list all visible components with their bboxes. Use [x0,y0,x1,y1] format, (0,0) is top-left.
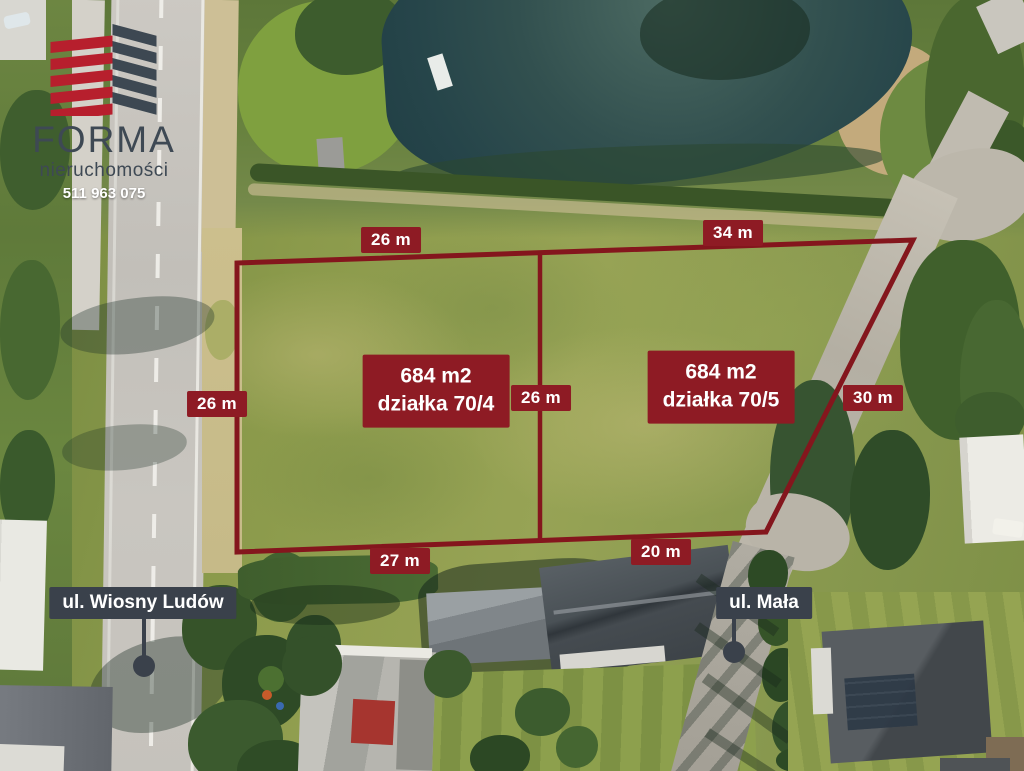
plot-outline [237,240,913,552]
dimension-label-right: 30 m [843,385,903,411]
brand-name: FORMA [28,121,180,158]
map-pin-dot-icon [723,641,745,663]
brand-phone: 511 963 075 [28,185,180,202]
plot-card-70-5: 684 m2 działka 70/5 [648,351,795,424]
dimension-label-bottom-left: 27 m [370,548,430,574]
plot-number: działka 70/4 [378,391,495,419]
plot-card-70-4: 684 m2 działka 70/4 [363,355,510,428]
map-pin-dot-icon [133,655,155,677]
plot-area: 684 m2 [378,363,495,391]
dimension-label-top-left: 26 m [361,227,421,253]
dimension-label-top-right: 34 m [703,220,763,246]
forma-logo: FORMA nieruchomości 511 963 075 [28,20,180,202]
street-label-mala: ul. Mała [716,587,812,619]
street-label-wiosny-ludow: ul. Wiosny Ludów [49,587,236,619]
plot-area: 684 m2 [663,359,780,387]
aerial-photo-canvas: 26 m 34 m 26 m 26 m 30 m 27 m 20 m 684 m… [0,0,1024,771]
plot-number: działka 70/5 [663,387,780,415]
dimension-label-bottom-right: 20 m [631,539,691,565]
dimension-label-left: 26 m [187,391,247,417]
dimension-label-center: 26 m [511,385,571,411]
building-logo-icon [47,20,162,116]
brand-subtitle: nieruchomości [28,160,180,182]
